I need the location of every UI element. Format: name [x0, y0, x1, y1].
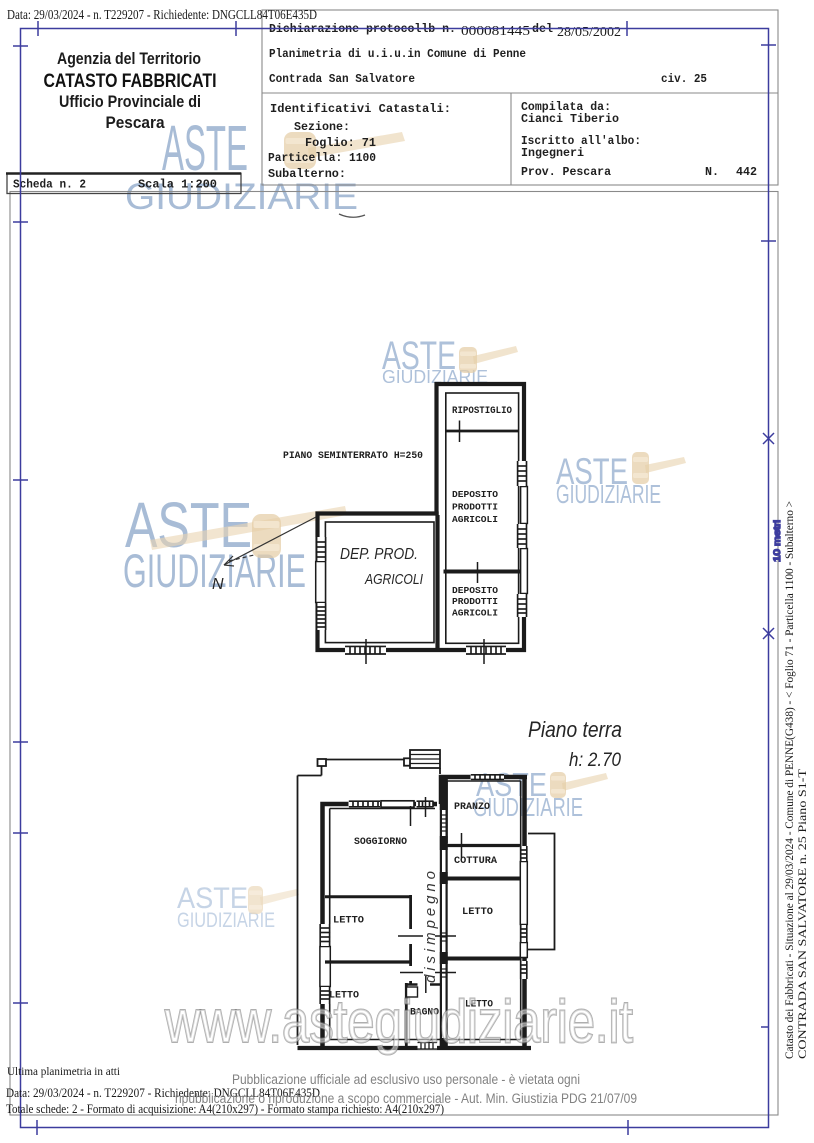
svg-text:CATASTO FABBRICATI: CATASTO FABBRICATI	[44, 70, 217, 92]
svg-text:PIANO SEMINTERRATO H=250: PIANO SEMINTERRATO H=250	[283, 450, 423, 462]
svg-text:del: del	[532, 23, 553, 36]
svg-text:h: 2.70: h: 2.70	[569, 750, 621, 771]
svg-text:LETTO: LETTO	[333, 916, 364, 927]
svg-text:Dichiarazione protocollb n.: Dichiarazione protocollb n.	[269, 23, 456, 36]
svg-text:Piano terra: Piano terra	[528, 717, 622, 742]
svg-text:Contrada San Salvatore: Contrada San Salvatore	[269, 73, 415, 86]
svg-text:Ultima planimetria in atti: Ultima planimetria in atti	[7, 1064, 121, 1078]
svg-text:Identificativi Catastali:: Identificativi Catastali:	[270, 103, 451, 116]
svg-text:AGRICOLI: AGRICOLI	[452, 514, 498, 525]
svg-text:Subalterno:: Subalterno:	[268, 168, 346, 181]
svg-text:civ. 25: civ. 25	[661, 73, 707, 86]
svg-text:Particella: 1100: Particella: 1100	[268, 152, 376, 165]
svg-text:Cianci Tiberio: Cianci Tiberio	[521, 113, 619, 126]
svg-text:Foglio: 71: Foglio: 71	[305, 137, 376, 150]
svg-text:Ufficio Provinciale di: Ufficio Provinciale di	[59, 93, 201, 111]
svg-text:DEP. PROD.: DEP. PROD.	[340, 546, 418, 563]
svg-text:PRODOTTI: PRODOTTI	[452, 502, 498, 513]
svg-text:N.: N.	[705, 166, 719, 179]
svg-text:Ingegneri: Ingegneri	[521, 147, 584, 160]
svg-text:Planimetria di u.i.u.in Comune: Planimetria di u.i.u.in Comune di Penne	[269, 48, 526, 61]
svg-text:Catasto dei Fabbricati - Situa: Catasto dei Fabbricati - Situazione al 2…	[784, 501, 796, 1059]
svg-text:RIPOSTIGLIO: RIPOSTIGLIO	[452, 406, 512, 417]
svg-text:LETTO: LETTO	[462, 907, 493, 918]
svg-text:PRANZO: PRANZO	[454, 802, 490, 813]
svg-text:CONTRADA SAN SALVATORE n. 25 P: CONTRADA SAN SALVATORE n. 25 Piano S1-T	[797, 769, 809, 1059]
svg-text:28/05/2002: 28/05/2002	[557, 24, 621, 39]
svg-text:DEPOSITO: DEPOSITO	[452, 585, 498, 596]
svg-text:Data: 29/03/2024 - n. T229207: Data: 29/03/2024 - n. T229207 - Richiede…	[7, 7, 317, 22]
svg-text:AGRICOLI: AGRICOLI	[364, 571, 423, 588]
svg-text:PRODOTTI: PRODOTTI	[452, 596, 498, 607]
svg-text:AGRICOLI: AGRICOLI	[452, 608, 498, 619]
svg-text:www.astegiudiziarie.it: www.astegiudiziarie.it	[164, 988, 633, 1055]
svg-text:COTTURA: COTTURA	[454, 856, 497, 867]
svg-text:ripubblicazione o riproduzione: ripubblicazione o riproduzione a scopo c…	[175, 1091, 637, 1106]
svg-text:SOGGIORNO: SOGGIORNO	[354, 837, 407, 848]
svg-text:N: N	[212, 576, 224, 593]
svg-text:Sezione:: Sezione:	[294, 121, 350, 134]
svg-text:Scala 1:200: Scala 1:200	[138, 179, 217, 192]
svg-text:000081445: 000081445	[461, 23, 530, 38]
svg-text:DEPOSITO: DEPOSITO	[452, 489, 498, 500]
svg-text:442: 442	[736, 166, 757, 179]
svg-text:disimpegno: disimpegno	[422, 871, 439, 983]
svg-text:Pubblicazione ufficiale ad esc: Pubblicazione ufficiale ad esclusivo uso…	[232, 1072, 580, 1087]
svg-text:Agenzia del Territorio: Agenzia del Territorio	[57, 50, 201, 68]
svg-text:Prov. Pescara: Prov. Pescara	[521, 166, 611, 179]
svg-text:10 metri: 10 metri	[772, 520, 783, 562]
svg-text:Scheda n. 2: Scheda n. 2	[13, 179, 86, 192]
svg-text:Pescara: Pescara	[106, 114, 166, 132]
